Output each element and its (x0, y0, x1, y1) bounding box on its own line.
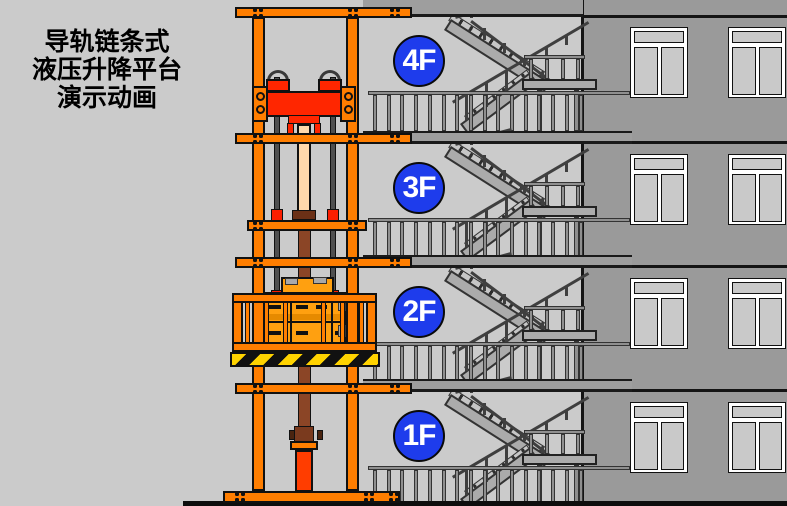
railing-post (524, 222, 528, 258)
cargo-slot (269, 305, 281, 309)
yoke-tab (287, 123, 294, 134)
window (728, 278, 786, 349)
bolt-cluster (253, 384, 265, 396)
railing-post (565, 346, 569, 382)
railing-post (561, 186, 565, 206)
window-pane (634, 298, 658, 346)
railing-post (505, 445, 508, 467)
cage-baluster (264, 302, 269, 344)
bolt-cluster (348, 384, 360, 396)
stair-handrail (530, 396, 589, 432)
corridor-rail (368, 91, 630, 95)
stair-landing (522, 330, 597, 341)
railing-post (387, 222, 391, 258)
carriage-bolt (344, 92, 353, 101)
railing-post (524, 346, 528, 382)
bolt-cluster (253, 258, 265, 270)
railing-post (387, 346, 391, 382)
railing-post (465, 345, 468, 371)
window-pane (759, 47, 782, 95)
bolt-cluster (390, 134, 402, 146)
bolt-cluster (390, 384, 402, 396)
railing-post (541, 323, 544, 329)
railing-post (579, 346, 583, 382)
railing-post (496, 95, 500, 131)
railing-post (387, 95, 391, 131)
railing-post (551, 95, 555, 131)
bolt-cluster (389, 492, 401, 504)
railing-post (483, 95, 487, 131)
railing-post (483, 346, 487, 382)
window (728, 402, 786, 473)
stair-handrail (530, 21, 589, 57)
window-pane (732, 422, 756, 470)
railing-post (414, 222, 418, 258)
stair-handrail (530, 148, 589, 184)
title-line: 演示动画 (12, 84, 202, 112)
bolt-cluster (235, 492, 247, 504)
railing-post (565, 95, 569, 131)
platform-deck-hazard-stripe (230, 352, 380, 367)
bolt-cluster (253, 8, 265, 20)
railing-post (503, 170, 506, 180)
bolt-cluster (253, 221, 265, 233)
railing-post (551, 222, 555, 258)
railing-post (455, 222, 459, 258)
cargo-slot (269, 331, 281, 335)
railing-post (565, 222, 569, 258)
railing-post (537, 346, 541, 382)
railing-post (496, 222, 500, 258)
corridor-rail (368, 466, 630, 470)
railing-post (565, 410, 568, 420)
window-transom (634, 31, 684, 43)
flange-bolt (289, 430, 295, 440)
cargo-slot (296, 305, 308, 309)
railing-post (561, 59, 565, 79)
cage-baluster (359, 302, 364, 344)
floor-section-3f: 3F (0, 144, 787, 258)
window-transom (634, 406, 684, 418)
railing-post (455, 346, 459, 382)
railing-post (529, 434, 533, 454)
cage-baluster (245, 302, 250, 344)
railing-post (469, 222, 473, 258)
cage-baluster (283, 302, 288, 344)
stair-handrail (530, 272, 589, 308)
window-transom (732, 158, 782, 170)
railing-post (576, 59, 580, 79)
window-transom (634, 158, 684, 170)
railing-post (551, 346, 555, 382)
railing-post (469, 95, 473, 131)
railing-post (505, 197, 508, 219)
window (630, 402, 688, 473)
cage-baluster (321, 302, 326, 344)
cylinder-mount-collar (290, 441, 318, 450)
bolt-cluster (390, 8, 402, 20)
railing-post (503, 294, 506, 304)
railing-post (496, 346, 500, 382)
railing-post (503, 418, 506, 428)
cage-baluster (340, 302, 345, 344)
animation-canvas: 4F 3F (0, 0, 787, 506)
bolt-cluster (348, 8, 360, 20)
railing-post (483, 279, 486, 291)
window-pane (732, 47, 756, 95)
cargo-fitting (313, 277, 327, 284)
title-line: 导轨链条式 (12, 28, 202, 56)
window (630, 278, 688, 349)
railing-post (442, 222, 446, 258)
railing-post (561, 434, 565, 454)
railing-post (400, 95, 404, 131)
railing-post (565, 162, 568, 172)
window-transom (732, 31, 782, 43)
window-pane (661, 47, 684, 95)
railing-post (414, 95, 418, 131)
window (630, 154, 688, 225)
floor-badge: 2F (393, 286, 445, 338)
flange-bolt (317, 430, 323, 440)
floor-badge-label: 4F (402, 44, 435, 77)
railing-post (576, 434, 580, 454)
floor-badge: 1F (393, 410, 445, 462)
window-pane (732, 174, 756, 222)
railing-post (455, 95, 459, 131)
railing-post (483, 403, 486, 415)
floor-section-1f: 1F (0, 392, 787, 506)
window-pane (759, 422, 782, 470)
railing-post (529, 59, 533, 79)
stair-landing (522, 79, 597, 90)
railing-post (576, 186, 580, 206)
railing-post (373, 222, 377, 258)
window-pane (634, 174, 658, 222)
railing-post (483, 28, 486, 40)
railing-post (561, 310, 565, 330)
cargo-fitting (285, 278, 298, 285)
window-transom (634, 282, 684, 294)
carriage-body (266, 91, 342, 117)
railing-post (541, 199, 544, 205)
cargo-seam (266, 321, 344, 323)
railing-post (505, 321, 508, 343)
railing-post (541, 72, 544, 78)
title-line: 液压升降平台 (12, 56, 202, 84)
window-pane (661, 174, 684, 222)
bolt-cluster (253, 134, 265, 146)
railing-post (545, 434, 549, 454)
window-pane (634, 47, 658, 95)
carriage-bolt (344, 105, 353, 114)
railing-post (510, 95, 514, 131)
railing-post (400, 346, 404, 382)
railing-post (483, 222, 487, 258)
cargo-slot (296, 331, 308, 335)
railing-post (428, 346, 432, 382)
railing-post (442, 346, 446, 382)
railing-post (541, 447, 544, 453)
window-pane (661, 298, 684, 346)
railing-post (400, 222, 404, 258)
railing-post (529, 310, 533, 330)
window-pane (661, 422, 684, 470)
railing-post (565, 35, 568, 45)
railing-post (428, 95, 432, 131)
window-pane (634, 422, 658, 470)
carriage-bolt (256, 92, 265, 101)
railing-post (428, 222, 432, 258)
railing-post (465, 221, 468, 247)
page-title: 导轨链条式 液压升降平台 演示动画 (12, 28, 202, 112)
railing-post (537, 222, 541, 258)
railing-post (505, 70, 508, 92)
railing-post (545, 310, 549, 330)
railing-post (465, 94, 468, 120)
floor-badge-label: 3F (402, 171, 435, 204)
bolt-cluster (364, 492, 376, 504)
floor-badge: 3F (393, 162, 445, 214)
railing-post (483, 155, 486, 167)
bolt-cluster (390, 258, 402, 270)
corridor-rail (368, 342, 630, 346)
floor-badge-label: 1F (402, 419, 435, 452)
window-transom (732, 282, 782, 294)
window-pane (759, 298, 782, 346)
window (728, 154, 786, 225)
floor-badge: 4F (393, 35, 445, 87)
bolt-cluster (348, 134, 360, 146)
stair-landing (522, 206, 597, 217)
railing-post (524, 95, 528, 131)
railing-post (537, 95, 541, 131)
railing-post (465, 469, 468, 495)
window (728, 27, 786, 98)
railing-post (469, 346, 473, 382)
floor-badge-label: 2F (402, 295, 435, 328)
railing-post (373, 95, 377, 131)
floor-section-2f: 2F (0, 268, 787, 382)
corridor-rail (368, 218, 630, 222)
railing-post (565, 286, 568, 296)
stair-landing (522, 454, 597, 465)
railing-post (442, 95, 446, 131)
railing-post (529, 186, 533, 206)
railing-post (545, 186, 549, 206)
window (630, 27, 688, 98)
window-pane (732, 298, 756, 346)
window-transom (732, 406, 782, 418)
cylinder-base (295, 450, 313, 492)
bolt-cluster (348, 221, 360, 233)
railing-post (579, 222, 583, 258)
cage-mid-rail (232, 342, 377, 352)
railing-post (414, 346, 418, 382)
cylinder-flange (294, 426, 314, 442)
window-pane (759, 174, 782, 222)
railing-post (545, 59, 549, 79)
railing-post (579, 95, 583, 131)
bolt-cluster (348, 258, 360, 270)
cage-top-rail (232, 293, 377, 303)
railing-post (503, 43, 506, 53)
carriage-bolt (256, 105, 265, 114)
railing-post (576, 310, 580, 330)
yoke-tab (314, 123, 321, 134)
